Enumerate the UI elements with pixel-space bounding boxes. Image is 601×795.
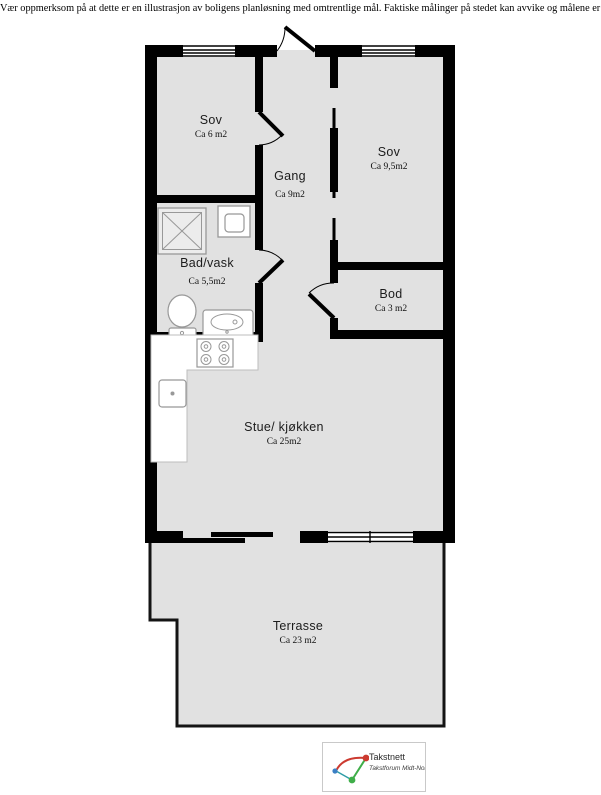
logo-subtitle: Takstforum Midt-Norge — [369, 765, 426, 772]
room-label-sov-2: Sov Ca 9,5m2 — [371, 145, 408, 172]
floorplan-drawing — [0, 0, 601, 795]
room-label-terrasse: Terrasse Ca 23 m2 — [273, 619, 323, 646]
window-icon — [183, 45, 235, 57]
room-area: Ca 9m2 — [274, 190, 306, 200]
washing-machine-icon — [218, 206, 250, 237]
room-label-sov-1: Sov Ca 6 m2 — [195, 113, 227, 140]
floorplan-page: Vær oppmerksom på at dette er en illustr… — [0, 0, 601, 795]
logo-title: Takstnett — [369, 752, 405, 762]
room-name: Bad/vask — [180, 256, 234, 270]
room-label-gang: Gang Ca 9m2 — [274, 169, 306, 200]
stove-icon — [197, 339, 233, 367]
toilet-icon — [168, 295, 196, 338]
bathroom-sink-icon — [203, 310, 253, 338]
room-label-bod: Bod Ca 3 m2 — [375, 287, 407, 314]
room-name: Terrasse — [273, 619, 323, 633]
room-label-stue-kjokken: Stue/ kjøkken Ca 25m2 — [244, 420, 324, 447]
room-name: Stue/ kjøkken — [244, 420, 324, 434]
room-area: Ca 23 m2 — [273, 636, 323, 646]
takstnett-logo: Takstnett Takstforum Midt-Norge — [322, 742, 426, 792]
window-icon — [362, 45, 415, 57]
room-name: Gang — [274, 169, 306, 183]
window-icon — [328, 531, 413, 543]
room-area: Ca 9,5m2 — [371, 162, 408, 172]
takstnett-logo-icon — [327, 747, 369, 787]
room-label-bad-vask: Bad/vask Ca 5,5m2 — [180, 256, 234, 287]
shower-icon — [158, 208, 206, 254]
room-area: Ca 6 m2 — [195, 130, 227, 140]
room-area: Ca 3 m2 — [375, 304, 407, 314]
kitchen-sink-icon — [159, 380, 186, 407]
room-area: Ca 5,5m2 — [180, 277, 234, 287]
room-area: Ca 25m2 — [244, 437, 324, 447]
entrance-door-swing-icon — [277, 27, 315, 51]
room-name: Sov — [195, 113, 227, 127]
room-name: Sov — [371, 145, 408, 159]
room-name: Bod — [375, 287, 407, 301]
